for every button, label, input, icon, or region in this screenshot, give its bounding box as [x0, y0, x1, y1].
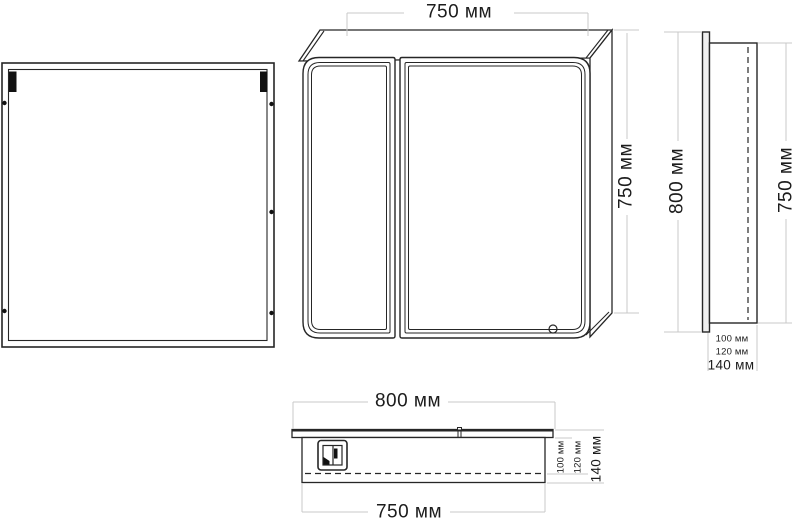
cabinet-side-face [590, 30, 612, 337]
door-left [303, 58, 395, 339]
side-depth-100-label: 100 мм [716, 334, 749, 344]
front-height-label: 750 мм [617, 143, 636, 209]
side-door-panel [703, 32, 710, 332]
top-depth-140-label: 140 мм [589, 436, 603, 483]
mounting-hole [2, 101, 6, 105]
top-body [302, 438, 545, 483]
side-depth-140-label: 140 мм [708, 358, 755, 372]
drawing-canvas [0, 0, 800, 526]
technical-drawing: 750 мм 750 мм 800 мм 750 мм 100 мм 120 м… [0, 0, 800, 526]
mounting-hole [269, 102, 273, 106]
front-view [299, 13, 639, 338]
mounting-hole [269, 311, 273, 315]
cabinet-top-face [299, 30, 612, 61]
top-depth-120-label: 120 мм [573, 441, 583, 474]
side-door-height-label: 800 мм [668, 148, 687, 214]
side-depth-120-label: 120 мм [716, 347, 749, 357]
door-left-outline [303, 58, 395, 339]
hinge-mark-left [9, 72, 17, 93]
rear-view [2, 63, 274, 347]
mounting-hole [2, 309, 6, 313]
top-depth-100-label: 100 мм [556, 441, 566, 474]
rear-frame-outer [2, 63, 274, 347]
hinge-mark-right [260, 72, 268, 93]
front-width-label: 750 мм [426, 3, 492, 22]
door-right [400, 58, 590, 339]
door-right-outline [400, 58, 590, 339]
side-body-height-label: 750 мм [777, 147, 796, 213]
top-body-width-label: 750 мм [376, 503, 442, 522]
mounting-hole [269, 210, 273, 214]
side-body [710, 43, 758, 323]
top-width-label: 800 мм [375, 392, 441, 411]
